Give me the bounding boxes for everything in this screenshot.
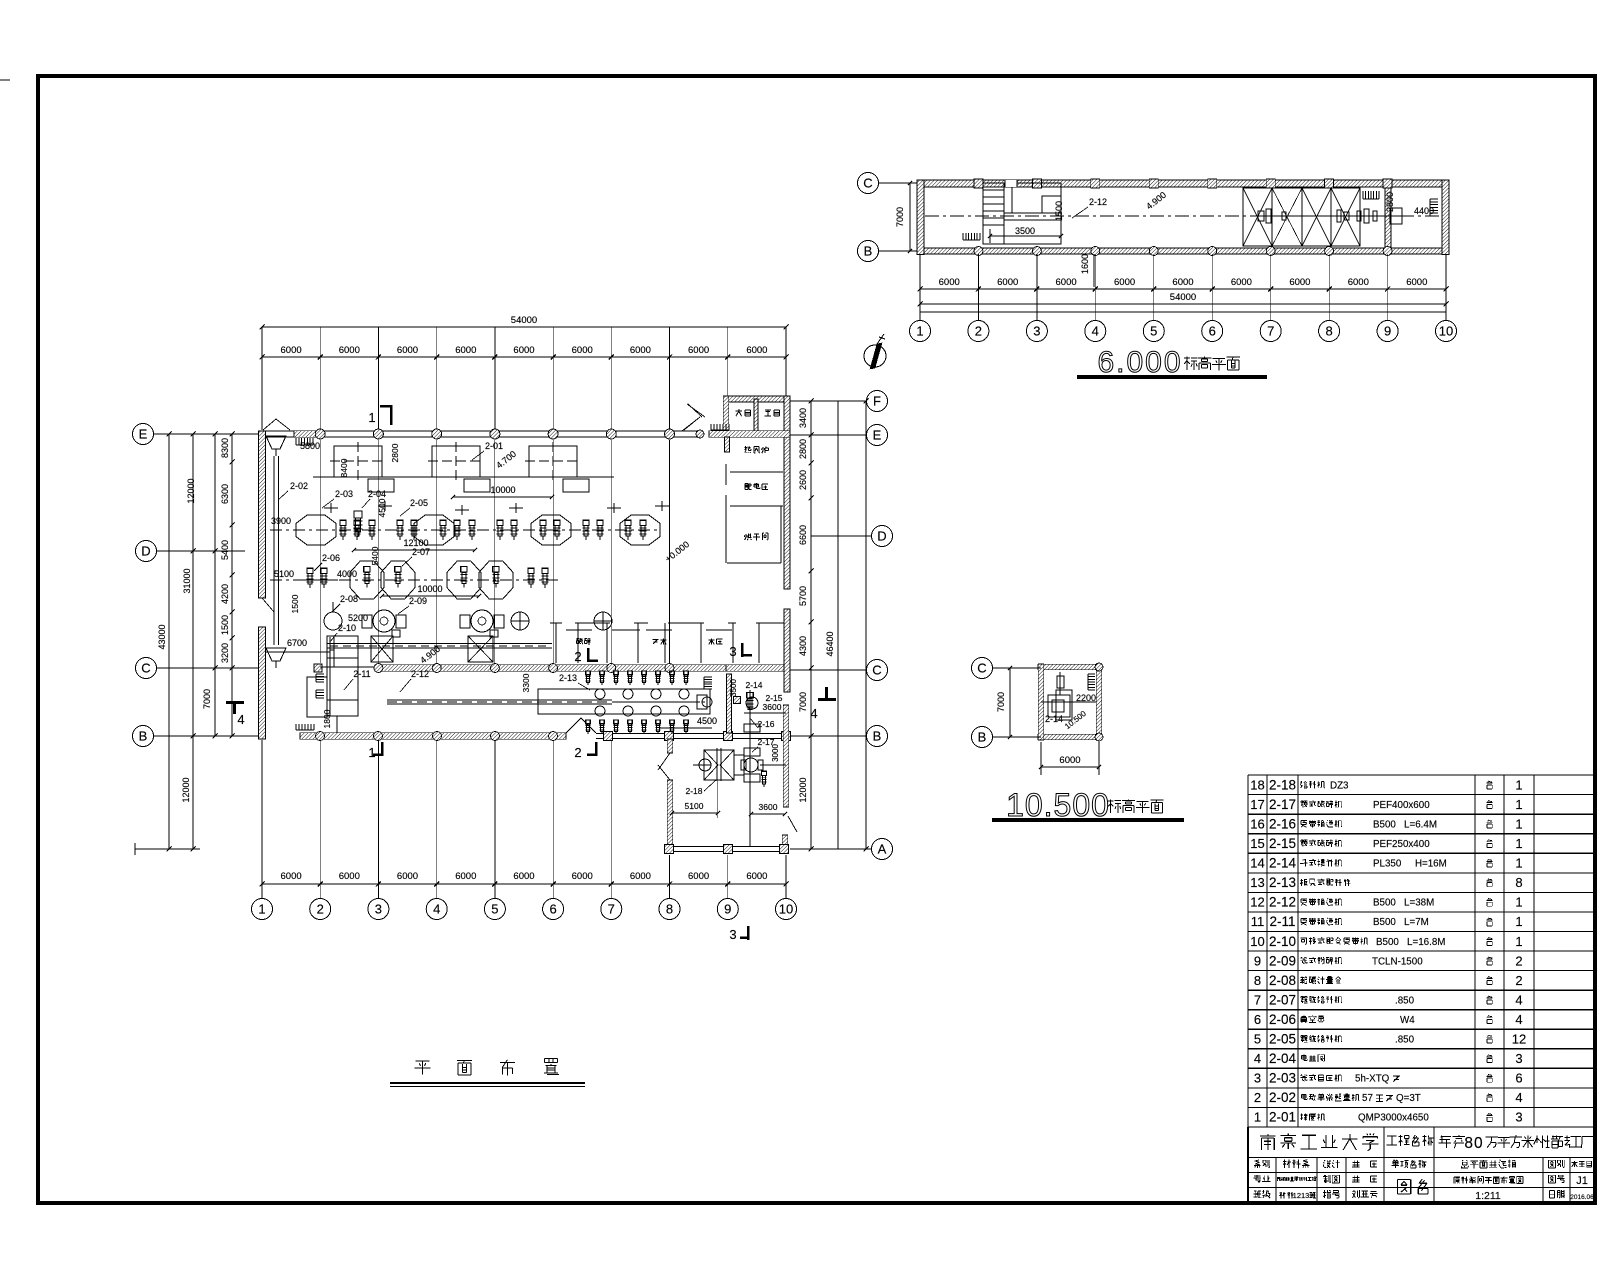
svg-text:12000: 12000 [798, 777, 808, 802]
svg-text:6000: 6000 [455, 871, 476, 882]
svg-text:TCLN-1500: TCLN-1500 [1372, 956, 1423, 967]
svg-text:7000: 7000 [798, 692, 808, 712]
svg-text:PEF250x400: PEF250x400 [1373, 839, 1430, 850]
svg-text:A: A [878, 842, 887, 857]
svg-text:1: 1 [1515, 836, 1522, 851]
svg-text:2: 2 [1254, 1090, 1261, 1105]
svg-text:7000: 7000 [895, 207, 905, 227]
svg-text:2800: 2800 [1385, 192, 1395, 212]
svg-text:5200: 5200 [348, 613, 368, 623]
svg-text:7: 7 [1267, 324, 1274, 339]
svg-text:2-08: 2-08 [340, 594, 358, 604]
svg-text:6000: 6000 [455, 345, 476, 356]
svg-text:6000: 6000 [281, 871, 302, 882]
svg-text:2-10: 2-10 [338, 623, 356, 633]
svg-text:2-18: 2-18 [685, 786, 702, 796]
svg-text:6000: 6000 [688, 345, 709, 356]
svg-text:5: 5 [491, 902, 498, 917]
svg-text:1: 1 [1515, 856, 1522, 871]
svg-text:7000: 7000 [202, 689, 212, 709]
svg-text:6.000: 6.000 [1097, 346, 1182, 379]
svg-text:2-14: 2-14 [1045, 714, 1063, 724]
svg-text:2-12: 2-12 [411, 669, 429, 679]
svg-text:6700: 6700 [287, 638, 307, 648]
svg-text:2-05: 2-05 [1269, 1032, 1296, 1047]
svg-text:1: 1 [368, 745, 375, 760]
svg-text:8400: 8400 [339, 458, 349, 477]
svg-text:2-13: 2-13 [1269, 875, 1296, 890]
svg-text:4: 4 [1515, 1090, 1522, 1105]
svg-text:3: 3 [375, 902, 382, 917]
svg-text:D: D [141, 544, 150, 559]
svg-text:54000: 54000 [511, 315, 537, 326]
svg-text:8: 8 [1515, 875, 1522, 890]
svg-text:1500: 1500 [290, 594, 300, 613]
svg-text:1500: 1500 [1054, 201, 1064, 221]
svg-text:6000: 6000 [630, 345, 651, 356]
svg-text:8: 8 [1325, 324, 1332, 339]
svg-text:.850: .850 [1395, 1035, 1415, 1046]
svg-text:2: 2 [317, 902, 324, 917]
svg-text:3: 3 [1515, 1051, 1522, 1066]
svg-text:6000: 6000 [572, 871, 593, 882]
svg-text:3300: 3300 [521, 673, 531, 692]
svg-text:6000: 6000 [1406, 277, 1427, 288]
svg-text:2-07: 2-07 [1269, 992, 1296, 1007]
svg-text:31000: 31000 [182, 568, 192, 593]
svg-text:1: 1 [1254, 1110, 1261, 1125]
svg-text:1: 1 [1515, 914, 1522, 929]
svg-text:13: 13 [1250, 875, 1264, 890]
svg-text:6300: 6300 [220, 484, 230, 504]
svg-text:1: 1 [1515, 777, 1522, 792]
svg-text:2-01: 2-01 [485, 441, 503, 451]
svg-text:2600: 2600 [798, 470, 808, 490]
svg-text:3500: 3500 [729, 679, 738, 697]
svg-text:5800: 5800 [300, 441, 320, 451]
svg-text:2-11: 2-11 [1269, 914, 1295, 929]
svg-text:1: 1 [368, 410, 375, 425]
svg-text:4000: 4000 [337, 569, 357, 579]
svg-text:6000: 6000 [688, 871, 709, 882]
svg-text:1213: 1213 [1293, 1191, 1310, 1200]
svg-text:D: D [877, 529, 886, 544]
svg-text:6000: 6000 [1289, 277, 1310, 288]
svg-text:6000: 6000 [339, 871, 360, 882]
svg-text:B500 L=16.8M: B500 L=16.8M [1376, 937, 1445, 948]
svg-text:9: 9 [1384, 324, 1391, 339]
svg-text:6000: 6000 [339, 345, 360, 356]
svg-text:6: 6 [1254, 1012, 1261, 1027]
svg-text:2-14: 2-14 [745, 680, 762, 690]
svg-text:2800: 2800 [390, 443, 400, 462]
svg-text:7: 7 [1254, 992, 1261, 1007]
svg-text:2-18: 2-18 [1269, 777, 1296, 792]
svg-text:6000: 6000 [746, 871, 767, 882]
svg-text:1: 1 [1515, 797, 1522, 812]
svg-text:2-01: 2-01 [1269, 1110, 1296, 1125]
svg-text:5: 5 [1254, 1032, 1261, 1047]
svg-text:2-03: 2-03 [335, 489, 353, 499]
svg-text:2-04: 2-04 [1269, 1051, 1297, 1066]
svg-text:B: B [873, 729, 882, 744]
svg-text:3500: 3500 [1015, 226, 1035, 236]
svg-text:2-09: 2-09 [409, 596, 427, 606]
svg-text:3: 3 [729, 927, 736, 942]
svg-text:6: 6 [1209, 324, 1216, 339]
svg-text:6000: 6000 [1114, 277, 1135, 288]
svg-text:5400: 5400 [220, 540, 230, 560]
svg-text:2-16: 2-16 [1269, 817, 1296, 832]
svg-text:6000: 6000 [1056, 277, 1077, 288]
svg-text:2-09: 2-09 [1269, 953, 1296, 968]
svg-text:10: 10 [1250, 934, 1264, 949]
svg-text:C: C [872, 663, 881, 678]
svg-text:2-07: 2-07 [412, 547, 430, 557]
svg-text:12: 12 [1512, 1032, 1526, 1047]
svg-text:2: 2 [1515, 953, 1522, 968]
svg-text:QMP3000x4650: QMP3000x4650 [1358, 1113, 1429, 1124]
svg-text:7000: 7000 [996, 692, 1006, 712]
svg-text:2: 2 [975, 324, 982, 339]
svg-text:1500: 1500 [220, 615, 230, 635]
svg-text:12000: 12000 [181, 777, 191, 802]
svg-text:PL350 H=16M: PL350 H=16M [1373, 859, 1447, 870]
svg-text:2-13: 2-13 [559, 673, 577, 683]
svg-text:2-08: 2-08 [1269, 973, 1296, 988]
svg-text:6000: 6000 [1059, 755, 1080, 766]
svg-text:4: 4 [1515, 1012, 1522, 1027]
svg-text:9: 9 [724, 902, 731, 917]
svg-text:6000: 6000 [1231, 277, 1252, 288]
svg-text:3900: 3900 [271, 516, 291, 526]
svg-text:2-04: 2-04 [368, 489, 386, 499]
svg-text:J1: J1 [1576, 1175, 1588, 1187]
svg-text:15: 15 [1250, 836, 1264, 851]
svg-text:4: 4 [1515, 992, 1522, 1007]
svg-text:6000: 6000 [397, 871, 418, 882]
svg-text:16: 16 [1250, 817, 1264, 832]
svg-text:10: 10 [1439, 324, 1453, 339]
svg-text:6000: 6000 [397, 345, 418, 356]
svg-text:1600: 1600 [1080, 254, 1090, 274]
svg-text:B500 L=38M: B500 L=38M [1373, 898, 1434, 909]
svg-text:4: 4 [1092, 324, 1099, 339]
svg-text:6000: 6000 [1348, 277, 1369, 288]
svg-text:1800: 1800 [322, 709, 332, 728]
svg-text:C: C [141, 661, 150, 676]
svg-text:B: B [139, 729, 148, 744]
svg-text:10: 10 [779, 902, 793, 917]
svg-text:B: B [978, 730, 987, 745]
svg-text:DZ3: DZ3 [1330, 780, 1349, 791]
svg-text:10.500: 10.500 [1006, 787, 1110, 823]
svg-text:2-02: 2-02 [1269, 1090, 1296, 1105]
svg-text:6000: 6000 [281, 345, 302, 356]
svg-text:6000: 6000 [1172, 277, 1193, 288]
svg-text:2016.06: 2016.06 [1570, 1194, 1594, 1201]
svg-text:5100: 5100 [274, 569, 294, 579]
svg-text:3: 3 [1515, 1110, 1522, 1125]
svg-text:2-10: 2-10 [1269, 934, 1296, 949]
svg-text:4: 4 [433, 902, 440, 917]
svg-text:5h-XTQ: 5h-XTQ [1355, 1074, 1390, 1085]
svg-text:3: 3 [729, 644, 736, 659]
svg-text:B500 L=6.4M: B500 L=6.4M [1373, 820, 1437, 831]
svg-text:2: 2 [574, 649, 581, 664]
svg-text:E: E [139, 427, 148, 442]
svg-text:6000: 6000 [630, 871, 651, 882]
svg-text:E: E [873, 428, 882, 443]
svg-text:2-03: 2-03 [1269, 1071, 1296, 1086]
svg-text:5700: 5700 [798, 586, 808, 606]
svg-text:6: 6 [1515, 1071, 1522, 1086]
svg-text:4: 4 [1254, 1051, 1261, 1066]
svg-text:5: 5 [1150, 324, 1157, 339]
svg-text:2-17: 2-17 [1269, 797, 1296, 812]
svg-text:3600: 3600 [763, 702, 782, 712]
svg-text:PEF400x600: PEF400x600 [1373, 800, 1430, 811]
svg-text:3200: 3200 [220, 643, 230, 663]
svg-text:2-11: 2-11 [353, 669, 370, 679]
svg-text:4400: 4400 [1414, 206, 1434, 216]
svg-text:2-06: 2-06 [1269, 1012, 1296, 1027]
svg-text:54000: 54000 [1170, 292, 1196, 303]
svg-text:1: 1 [1515, 817, 1522, 832]
svg-text:6000: 6000 [746, 345, 767, 356]
svg-text:F: F [873, 394, 881, 409]
svg-text:B500 L=7M: B500 L=7M [1373, 917, 1429, 928]
svg-text:57: 57 [1362, 1093, 1373, 1104]
svg-text:6000: 6000 [997, 277, 1018, 288]
svg-text:2800: 2800 [798, 439, 808, 459]
svg-text:2-12: 2-12 [1089, 197, 1107, 207]
svg-text:3000: 3000 [771, 744, 780, 762]
svg-text:C: C [977, 661, 986, 676]
svg-text:1: 1 [258, 902, 265, 917]
svg-text:C: C [863, 176, 872, 191]
svg-text:10000: 10000 [417, 584, 442, 594]
svg-text:6: 6 [549, 902, 556, 917]
svg-text:6000: 6000 [513, 871, 534, 882]
svg-text:3600: 3600 [759, 802, 778, 812]
svg-text:6000: 6000 [513, 345, 534, 356]
svg-text:.850: .850 [1395, 995, 1415, 1006]
svg-text:6000: 6000 [572, 345, 593, 356]
svg-text:W4: W4 [1400, 1015, 1415, 1026]
svg-text:12: 12 [1250, 895, 1264, 910]
svg-text:2: 2 [1515, 973, 1522, 988]
svg-text:Q=3T: Q=3T [1396, 1093, 1421, 1104]
svg-text:4: 4 [810, 706, 817, 721]
svg-text:2-06: 2-06 [322, 553, 340, 563]
svg-text:1:211: 1:211 [1475, 1190, 1501, 1202]
svg-text:46400: 46400 [825, 631, 835, 656]
svg-text:1: 1 [1515, 895, 1522, 910]
svg-text:7: 7 [608, 902, 615, 917]
svg-text:3: 3 [1033, 324, 1040, 339]
svg-text:1: 1 [916, 324, 923, 339]
svg-text:9: 9 [1254, 953, 1261, 968]
svg-text:2-15: 2-15 [1269, 836, 1296, 851]
svg-text:2200: 2200 [1076, 693, 1096, 703]
svg-text:80: 80 [1464, 1135, 1483, 1152]
svg-text:3400: 3400 [798, 408, 808, 428]
svg-text:6600: 6600 [798, 525, 808, 545]
svg-text:10000: 10000 [490, 485, 515, 495]
svg-text:2-05: 2-05 [410, 498, 428, 508]
svg-text:2-02: 2-02 [290, 481, 308, 491]
svg-text:8: 8 [666, 902, 673, 917]
svg-text:8300: 8300 [220, 438, 230, 458]
svg-text:12000: 12000 [186, 478, 196, 503]
svg-text:18: 18 [1250, 777, 1264, 792]
svg-text:14: 14 [1250, 856, 1264, 871]
svg-text:3: 3 [1254, 1071, 1261, 1086]
svg-text:4500: 4500 [697, 716, 717, 726]
svg-text:4200: 4200 [220, 584, 230, 604]
svg-text:B: B [864, 244, 873, 259]
svg-text:1: 1 [1515, 934, 1522, 949]
svg-text:8: 8 [1254, 973, 1261, 988]
svg-text:2-12: 2-12 [1269, 895, 1296, 910]
svg-text:11: 11 [1251, 914, 1265, 929]
svg-text:6000: 6000 [939, 277, 960, 288]
svg-text:43000: 43000 [157, 624, 167, 649]
svg-text:5100: 5100 [685, 801, 704, 811]
svg-text:2: 2 [574, 745, 581, 760]
svg-text:17: 17 [1250, 797, 1264, 812]
svg-text:4300: 4300 [798, 636, 808, 656]
svg-text:4: 4 [237, 712, 244, 727]
svg-text:2-14: 2-14 [1269, 856, 1297, 871]
